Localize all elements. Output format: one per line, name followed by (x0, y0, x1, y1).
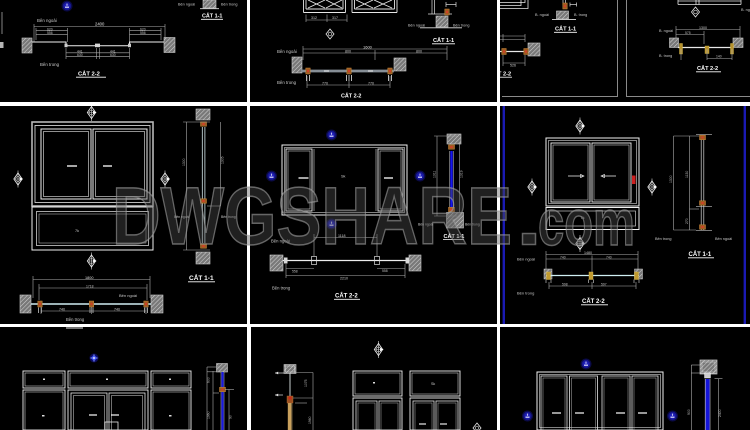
svg-text:270: 270 (685, 218, 689, 224)
svg-text:317: 317 (332, 16, 338, 20)
svg-text:Sk: Sk (431, 382, 435, 386)
svg-text:1300: 1300 (182, 158, 186, 166)
svg-text:CẮT 1-1: CẮT 1-1 (433, 36, 454, 44)
svg-text:2210: 2210 (340, 276, 348, 280)
svg-text:597: 597 (601, 282, 607, 286)
svg-text:Bên trong: Bên trong (465, 223, 480, 227)
svg-text:Bên ngoài: Bên ngoài (715, 237, 732, 241)
svg-text:900: 900 (687, 409, 691, 415)
svg-text:CẮT 1-1: CẮT 1-1 (689, 250, 712, 258)
svg-text:Bên trong: Bên trong (272, 286, 291, 291)
svg-text:1118: 1118 (338, 234, 345, 238)
svg-text:CẮT 2-2: CẮT 2-2 (697, 64, 718, 72)
svg-text:2400: 2400 (95, 22, 105, 27)
svg-text:Bên ngoài: Bên ngoài (408, 24, 425, 28)
svg-text:1311: 1311 (433, 171, 437, 178)
svg-text:526: 526 (510, 64, 516, 68)
svg-text:Bên ngoài: Bên ngoài (277, 49, 297, 54)
svg-text:CẮT 2-2: CẮT 2-2 (341, 92, 361, 100)
svg-text:Bên trong: Bên trong (517, 291, 534, 296)
svg-text:B. trong: B. trong (659, 54, 672, 58)
svg-text:Sk: Sk (341, 175, 346, 179)
svg-text:1305: 1305 (221, 156, 225, 164)
svg-text:558: 558 (292, 270, 298, 274)
svg-text:1600: 1600 (363, 44, 373, 49)
svg-text:CẮT 1-1: CẮT 1-1 (202, 12, 222, 20)
svg-text:556: 556 (140, 31, 146, 35)
svg-text:312: 312 (311, 16, 317, 20)
svg-text:Bên trong: Bên trong (655, 237, 671, 241)
svg-text:CẮT 1-1: CẮT 1-1 (555, 25, 576, 33)
svg-text:740: 740 (560, 255, 566, 259)
svg-text:2400: 2400 (718, 409, 722, 417)
svg-text:Bên ngoài: Bên ngoài (517, 257, 535, 262)
svg-text:CẮT 2-2: CẮT 2-2 (335, 292, 358, 300)
svg-text:Bên trong: Bên trong (40, 62, 60, 67)
svg-text:90: 90 (229, 415, 233, 419)
svg-text:1130: 1130 (685, 171, 689, 178)
svg-text:1319: 1319 (460, 170, 464, 178)
svg-text:630: 630 (110, 53, 116, 57)
svg-text:B. trong: B. trong (574, 13, 587, 17)
svg-text:1800: 1800 (85, 276, 93, 280)
svg-text:800: 800 (416, 50, 422, 54)
svg-text:CẮT 1-1: CẮT 1-1 (189, 273, 214, 282)
svg-text:140: 140 (716, 55, 722, 59)
svg-text:1300: 1300 (669, 175, 673, 183)
svg-text:1718: 1718 (86, 284, 94, 288)
svg-text:Bên ngoài: Bên ngoài (271, 239, 290, 244)
svg-text:598: 598 (562, 282, 568, 286)
svg-text:800: 800 (345, 50, 351, 54)
svg-text:T 2-2: T 2-2 (500, 72, 511, 78)
svg-text:Bên ngoài: Bên ngoài (178, 3, 195, 7)
svg-text:Bên trong: Bên trong (277, 80, 297, 85)
svg-text:CẮT 1-1: CẮT 1-1 (444, 232, 465, 240)
svg-text:B. ngoài: B. ngoài (535, 13, 549, 17)
svg-text:B. ngoài: B. ngoài (659, 29, 673, 33)
svg-text:Bên ngoài: Bên ngoài (37, 18, 57, 23)
svg-text:1300: 1300 (699, 26, 707, 30)
svg-text:630: 630 (77, 53, 83, 57)
svg-text:770: 770 (368, 82, 374, 86)
svg-text:Bên trong: Bên trong (453, 24, 469, 28)
svg-text:558: 558 (382, 269, 388, 273)
svg-text:740: 740 (59, 307, 65, 311)
svg-text:Bên trong: Bên trong (66, 317, 85, 322)
svg-text:740: 740 (114, 307, 120, 311)
svg-text:Bên ngoài: Bên ngoài (418, 223, 434, 227)
svg-text:1480: 1480 (584, 251, 592, 255)
svg-text:740: 740 (606, 255, 612, 259)
svg-text:556: 556 (47, 31, 53, 35)
svg-text:Bên ngoài: Bên ngoài (119, 293, 137, 298)
svg-text:600: 600 (207, 377, 211, 383)
svg-text:7k: 7k (581, 216, 585, 220)
svg-text:1960: 1960 (207, 411, 211, 419)
svg-text:Bên trong: Bên trong (221, 215, 236, 219)
svg-text:1075: 1075 (304, 379, 308, 387)
svg-text:CẮT 2-2: CẮT 2-2 (582, 297, 605, 305)
svg-text:CẮT 2-2: CẮT 2-2 (78, 70, 100, 78)
svg-text:7k: 7k (75, 229, 79, 233)
svg-text:B. ng: B. ng (741, 8, 750, 12)
svg-text:770: 770 (322, 82, 328, 86)
svg-text:Bên trong: Bên trong (221, 3, 237, 7)
svg-text:Bên ngoài: Bên ngoài (174, 215, 190, 219)
svg-text:575: 575 (685, 31, 691, 35)
svg-text:1960: 1960 (308, 416, 312, 424)
